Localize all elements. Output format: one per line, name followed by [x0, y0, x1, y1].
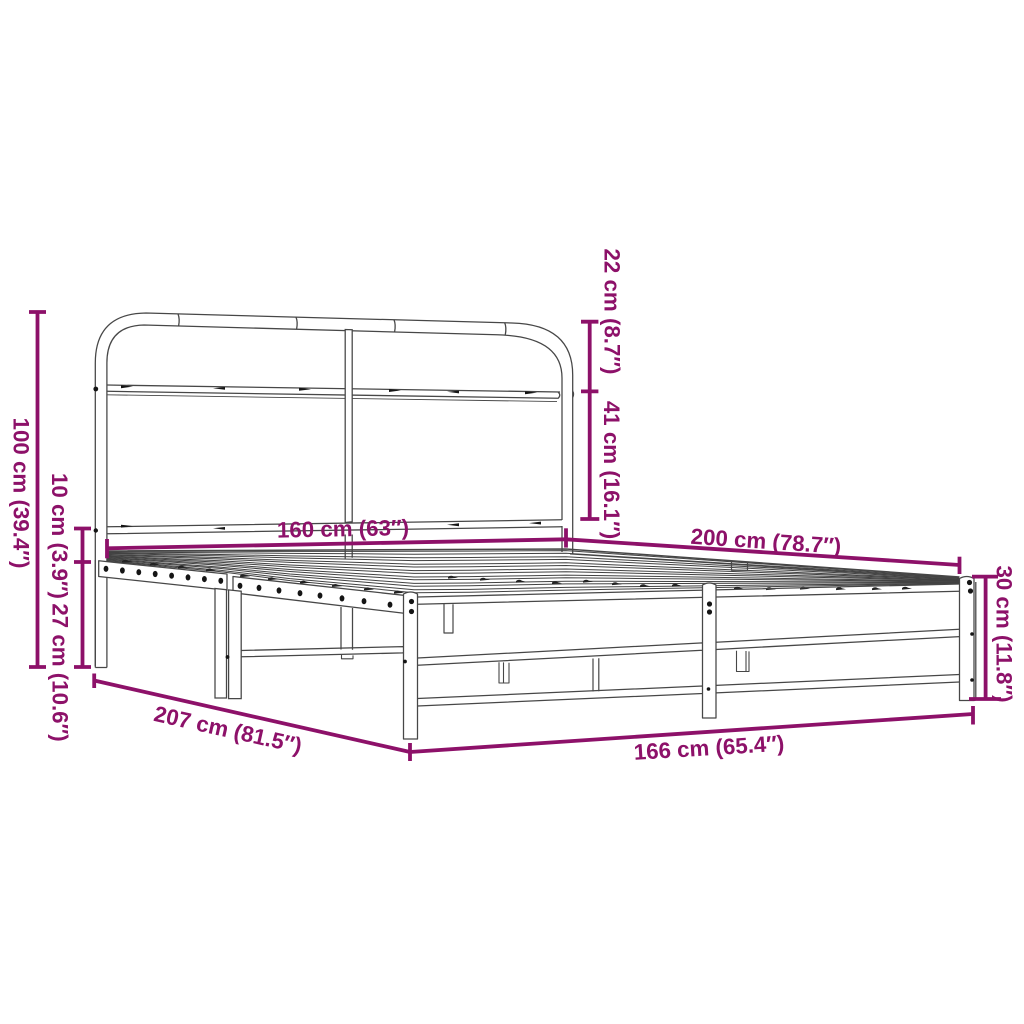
svg-text:30 cm (11.8″): 30 cm (11.8″): [992, 565, 1017, 702]
svg-text:22 cm (8.7″): 22 cm (8.7″): [600, 249, 625, 375]
svg-text:160 cm (63″): 160 cm (63″): [277, 515, 410, 543]
svg-text:41 cm (16.1″): 41 cm (16.1″): [599, 401, 624, 539]
svg-text:27 cm (10.6″): 27 cm (10.6″): [48, 603, 73, 741]
svg-text:100 cm (39.4″): 100 cm (39.4″): [9, 418, 34, 569]
svg-text:10 cm (3.9″): 10 cm (3.9″): [47, 473, 72, 599]
